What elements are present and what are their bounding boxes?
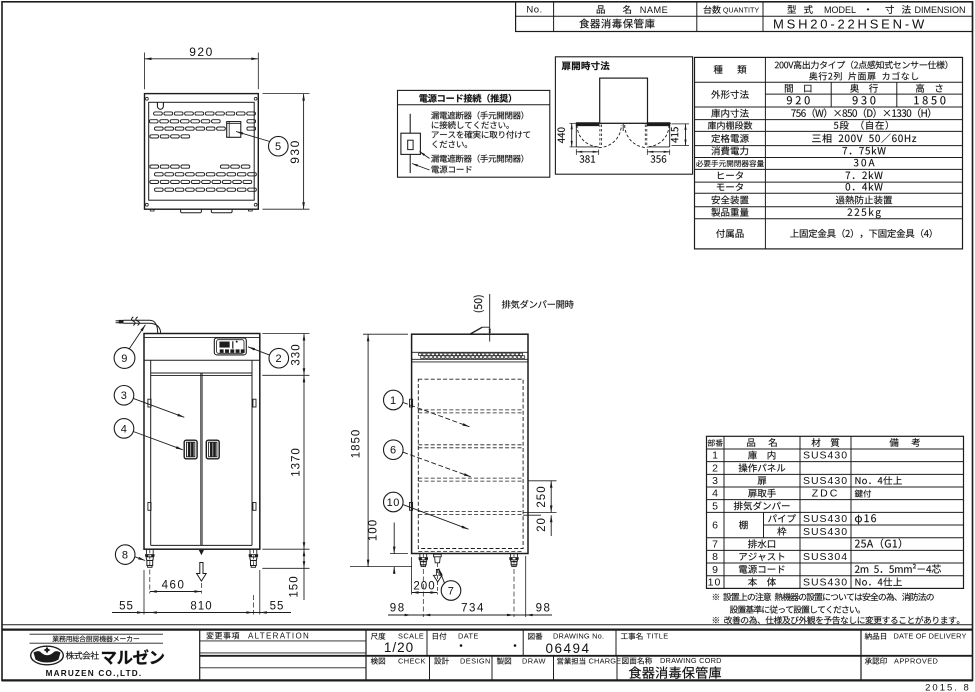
- svg-text:3: 3: [121, 390, 128, 402]
- svg-text:DIMENSION: DIMENSION: [914, 5, 965, 15]
- svg-text:6: 6: [712, 519, 718, 531]
- svg-text:DATE OF DELIVERY: DATE OF DELIVERY: [894, 632, 967, 641]
- svg-text:1370: 1370: [291, 447, 303, 477]
- svg-text:200: 200: [413, 581, 435, 593]
- svg-text:SUS430: SUS430: [803, 576, 848, 588]
- svg-text:QUANTITY: QUANTITY: [723, 6, 760, 15]
- svg-text:2: 2: [712, 462, 718, 474]
- svg-text:4: 4: [712, 488, 718, 500]
- svg-text:SUS304: SUS304: [803, 551, 848, 563]
- svg-text:150: 150: [289, 575, 301, 597]
- svg-text:DRAWING CORD: DRAWING CORD: [660, 656, 722, 665]
- svg-text:9: 9: [121, 353, 128, 365]
- svg-text:2015. 8: 2015. 8: [925, 682, 971, 692]
- svg-text:ZDC: ZDC: [812, 488, 840, 500]
- svg-text:DRAWING No.: DRAWING No.: [553, 632, 604, 641]
- svg-text:55: 55: [270, 601, 285, 613]
- svg-text:810: 810: [190, 601, 212, 613]
- svg-text:1/20: 1/20: [384, 640, 414, 655]
- svg-text:55: 55: [119, 601, 134, 613]
- svg-text:SUS430: SUS430: [803, 513, 848, 525]
- svg-text:CHECK: CHECK: [398, 656, 426, 665]
- svg-text:3: 3: [712, 475, 718, 487]
- svg-text:MODEL: MODEL: [824, 5, 856, 15]
- svg-text:ALTERATION: ALTERATION: [248, 631, 310, 640]
- svg-text:460: 460: [162, 580, 186, 592]
- svg-text:100: 100: [367, 519, 379, 541]
- svg-text:APPROVED: APPROVED: [894, 656, 938, 665]
- svg-text:TITLE: TITLE: [647, 632, 669, 641]
- svg-text:98: 98: [390, 603, 406, 615]
- svg-text:1: 1: [712, 450, 718, 462]
- svg-text:DATE: DATE: [458, 632, 479, 641]
- svg-text:10: 10: [708, 576, 722, 588]
- svg-text:DESIGN: DESIGN: [460, 656, 491, 665]
- svg-text:5: 5: [275, 141, 282, 153]
- svg-text:DRAW: DRAW: [522, 656, 546, 665]
- svg-text:734: 734: [461, 603, 485, 615]
- svg-text:7: 7: [448, 585, 455, 597]
- svg-text:1: 1: [390, 395, 397, 407]
- svg-text:10: 10: [387, 497, 400, 509]
- svg-text:930: 930: [288, 139, 302, 164]
- svg-text:SUS430: SUS430: [803, 475, 848, 487]
- svg-text:920: 920: [189, 45, 214, 59]
- svg-text:98: 98: [536, 603, 552, 615]
- svg-text:MARUZEN CO.,LTD.: MARUZEN CO.,LTD.: [46, 669, 143, 678]
- svg-text:20: 20: [536, 517, 548, 532]
- svg-text:6: 6: [390, 445, 397, 457]
- svg-text:9: 9: [712, 564, 718, 576]
- svg-text:06494: 06494: [545, 641, 590, 656]
- svg-text:7: 7: [712, 538, 718, 550]
- svg-text:1850: 1850: [351, 429, 363, 459]
- svg-text:250: 250: [536, 485, 548, 507]
- svg-text:CHARGE: CHARGE: [589, 656, 622, 665]
- svg-text:8: 8: [712, 551, 718, 563]
- svg-text:330: 330: [291, 343, 303, 365]
- svg-text:8: 8: [122, 550, 129, 562]
- svg-text:MSH20-22HSEN-W: MSH20-22HSEN-W: [773, 16, 927, 31]
- svg-text:2: 2: [275, 353, 282, 365]
- svg-text:SUS430: SUS430: [803, 526, 848, 538]
- svg-text:NAME: NAME: [640, 5, 669, 15]
- svg-text:4: 4: [121, 423, 128, 435]
- svg-text:SUS430: SUS430: [803, 450, 848, 462]
- svg-text:5: 5: [712, 500, 718, 512]
- svg-text:No.: No.: [526, 5, 542, 16]
